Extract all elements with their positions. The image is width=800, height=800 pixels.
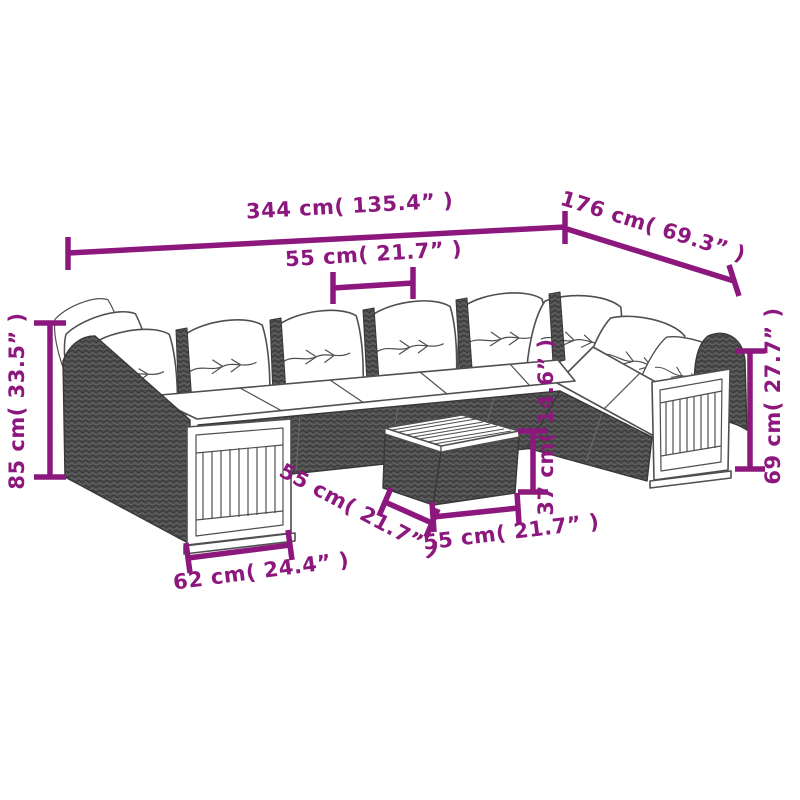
dim-overall-depth: 176 cm( 69.3” ) <box>558 186 749 296</box>
product-dimension-diagram: 344 cm( 135.4” ) 176 cm( 69.3” ) 55 cm( … <box>0 0 800 800</box>
sofa-illustration <box>47 288 747 554</box>
wood-panel-left <box>184 419 295 554</box>
dim-arm-height-label: 69 cm( 27.7” ) <box>761 307 785 484</box>
dim-table-height-label: 37 cm( 14.6” ) <box>534 338 558 515</box>
panel-frame <box>652 369 730 480</box>
wood-panel-right <box>650 369 731 488</box>
dim-seat-module-width: 55 cm( 21.7” ) <box>284 237 462 304</box>
dim-tick <box>432 502 434 532</box>
coffee-table <box>383 415 519 505</box>
dim-overall-height-label: 85 cm( 33.5” ) <box>5 312 29 489</box>
diagram-canvas: 344 cm( 135.4” ) 176 cm( 69.3” ) 55 cm( … <box>0 0 800 800</box>
dim-overall-width-label: 344 cm( 135.4” ) <box>245 188 454 223</box>
